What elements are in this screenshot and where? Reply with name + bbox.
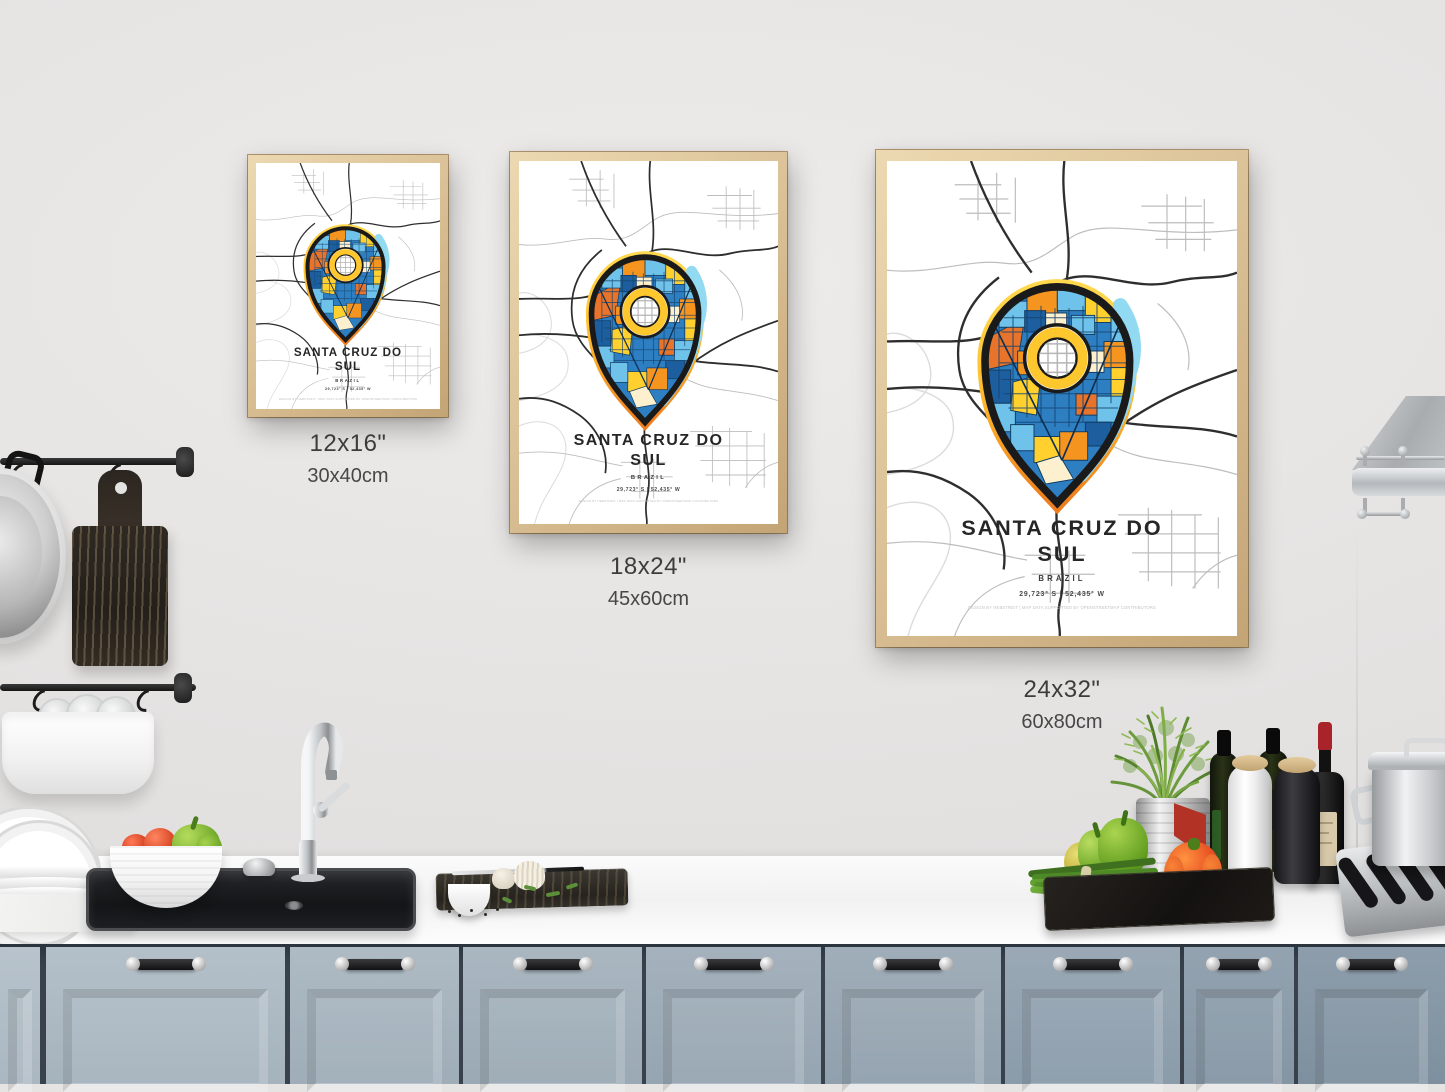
cabinet-door bbox=[825, 947, 1001, 1084]
poster-coordinates: 29,723° S | 52,435° W bbox=[256, 387, 440, 391]
board-hole bbox=[115, 482, 127, 494]
cabinet-door bbox=[1184, 947, 1294, 1084]
poster-title-line2: SUL bbox=[630, 451, 666, 469]
cabinet-door bbox=[646, 947, 821, 1084]
peppercorn bbox=[496, 908, 499, 911]
faucet bbox=[266, 682, 362, 882]
framed-map-poster-large: SANTA CRUZ DO SUL BRAZIL 29,723° S | 52,… bbox=[876, 150, 1248, 647]
cabinet-handle bbox=[135, 959, 197, 970]
pot-lid-handle bbox=[1404, 738, 1445, 757]
salt-grinder bbox=[1228, 764, 1272, 882]
size-cm: 30x40cm bbox=[248, 465, 448, 488]
grinder-cap bbox=[1232, 755, 1269, 771]
rail-finial bbox=[176, 447, 194, 477]
cabinet-panel bbox=[480, 989, 625, 1092]
rail-finial bbox=[174, 673, 192, 703]
wine-cap bbox=[1318, 722, 1332, 750]
poster-coordinates: 29,723° S | 52,435° W bbox=[519, 487, 778, 493]
cabinet-door bbox=[46, 947, 285, 1084]
peppercorn bbox=[484, 913, 487, 916]
poster-text-block: SANTA CRUZ DO SUL BRAZIL 29,723° S | 52,… bbox=[519, 431, 778, 502]
poster-title-line2: SUL bbox=[1038, 541, 1087, 566]
size-label-12x16: 12x16" 30x40cm bbox=[248, 430, 448, 488]
poster-artwork: SANTA CRUZ DO SUL BRAZIL 29,723° S | 52,… bbox=[887, 161, 1237, 636]
bottle-cap bbox=[1217, 730, 1231, 756]
cabinet-panel bbox=[1196, 989, 1282, 1092]
poster-title: SANTA CRUZ DO SUL bbox=[256, 346, 440, 374]
poster-title-line1: SANTA CRUZ DO bbox=[294, 346, 402, 359]
cabinet-panel bbox=[842, 989, 984, 1092]
peppercorn bbox=[448, 910, 451, 913]
cabinet-panel bbox=[8, 989, 32, 1092]
poster-title: SANTA CRUZ DO SUL bbox=[519, 431, 778, 470]
poster-credit: DESIGN BY HEBSTREIT | MAP DATA SUPPORTED… bbox=[256, 397, 440, 401]
sink-drain bbox=[285, 901, 303, 910]
grinder-cap bbox=[1278, 757, 1317, 773]
peppercorn bbox=[458, 914, 461, 917]
garlic-bulb bbox=[492, 868, 515, 889]
poster-title-line1: SANTA CRUZ DO bbox=[961, 515, 1162, 540]
red-pepper-stem bbox=[1188, 838, 1200, 850]
poster-artwork: SANTA CRUZ DO SUL BRAZIL 29,723° S | 52,… bbox=[519, 161, 778, 524]
hood-rail-ball bbox=[1400, 509, 1410, 519]
poster-artwork: SANTA CRUZ DO SUL BRAZIL 29,723° S | 52,… bbox=[256, 163, 440, 409]
cabinet-handle bbox=[882, 959, 944, 970]
poster-text-block: SANTA CRUZ DO SUL BRAZIL 29,723° S | 52,… bbox=[887, 515, 1237, 610]
cabinet-handle bbox=[1062, 959, 1124, 970]
cabinet-door bbox=[290, 947, 459, 1084]
hanging-utensil-basket bbox=[2, 712, 154, 794]
size-inches: 18x24" bbox=[510, 553, 787, 581]
poster-coordinates: 29,723° S | 52,435° W bbox=[887, 591, 1237, 598]
poster-credit: DESIGN BY HEBSTREIT | MAP DATA SUPPORTED… bbox=[519, 499, 778, 503]
kitchen-mockup-photo: { "poster": { "title_line1": "SANTA CRUZ… bbox=[0, 0, 1445, 1084]
cabinet-panel bbox=[663, 989, 804, 1092]
cabinet-row bbox=[0, 944, 1445, 1084]
size-cm: 45x60cm bbox=[510, 588, 787, 611]
poster-country: BRAZIL bbox=[519, 475, 778, 481]
bottle-cap bbox=[1266, 728, 1280, 754]
cabinet-panel bbox=[1022, 989, 1163, 1092]
cabinet-door bbox=[1298, 947, 1445, 1084]
stainless-pot bbox=[1372, 766, 1445, 866]
poster-country: BRAZIL bbox=[887, 574, 1237, 583]
utensil-rail-lower bbox=[0, 684, 196, 691]
cabinet-panel bbox=[63, 989, 268, 1092]
poster-title: SANTA CRUZ DO SUL bbox=[887, 515, 1237, 567]
framed-map-poster-medium: SANTA CRUZ DO SUL BRAZIL 29,723° S | 52,… bbox=[510, 152, 787, 533]
range-hood-shelf bbox=[1352, 468, 1445, 496]
peppercorn bbox=[470, 909, 473, 912]
cabinet-handle bbox=[703, 959, 765, 970]
cabinet-handle bbox=[522, 959, 584, 970]
poster-credit: DESIGN BY HEBSTREIT | MAP DATA SUPPORTED… bbox=[887, 605, 1237, 610]
poster-title-line2: SUL bbox=[335, 360, 361, 373]
cabinet-handle bbox=[1345, 959, 1399, 970]
slate-serving-board bbox=[1043, 867, 1275, 931]
cabinet-door bbox=[463, 947, 642, 1084]
size-inches: 12x16" bbox=[248, 430, 448, 458]
poster-title-line1: SANTA CRUZ DO bbox=[574, 431, 724, 449]
hood-rail-ball bbox=[1360, 446, 1370, 456]
poster-text-block: SANTA CRUZ DO SUL BRAZIL 29,723° S | 52,… bbox=[256, 346, 440, 401]
cabinet-door bbox=[0, 947, 40, 1084]
cabinet-door bbox=[1005, 947, 1180, 1084]
poster-country: BRAZIL bbox=[256, 378, 440, 383]
size-label-18x24: 18x24" 45x60cm bbox=[510, 553, 787, 611]
pepper-grinder bbox=[1274, 766, 1320, 884]
cabinet-panel bbox=[1315, 989, 1428, 1092]
framed-map-poster-small: SANTA CRUZ DO SUL BRAZIL 29,723° S | 52,… bbox=[248, 155, 448, 417]
board-body bbox=[72, 526, 168, 666]
cabinet-handle bbox=[344, 959, 406, 970]
hood-rail-ball bbox=[1357, 509, 1367, 519]
cabinet-handle bbox=[1215, 959, 1263, 970]
hood-rail-ball bbox=[1398, 446, 1408, 456]
cabinet-panel bbox=[307, 989, 442, 1092]
hanging-cutting-board bbox=[72, 470, 168, 666]
pan-inner bbox=[0, 496, 42, 609]
